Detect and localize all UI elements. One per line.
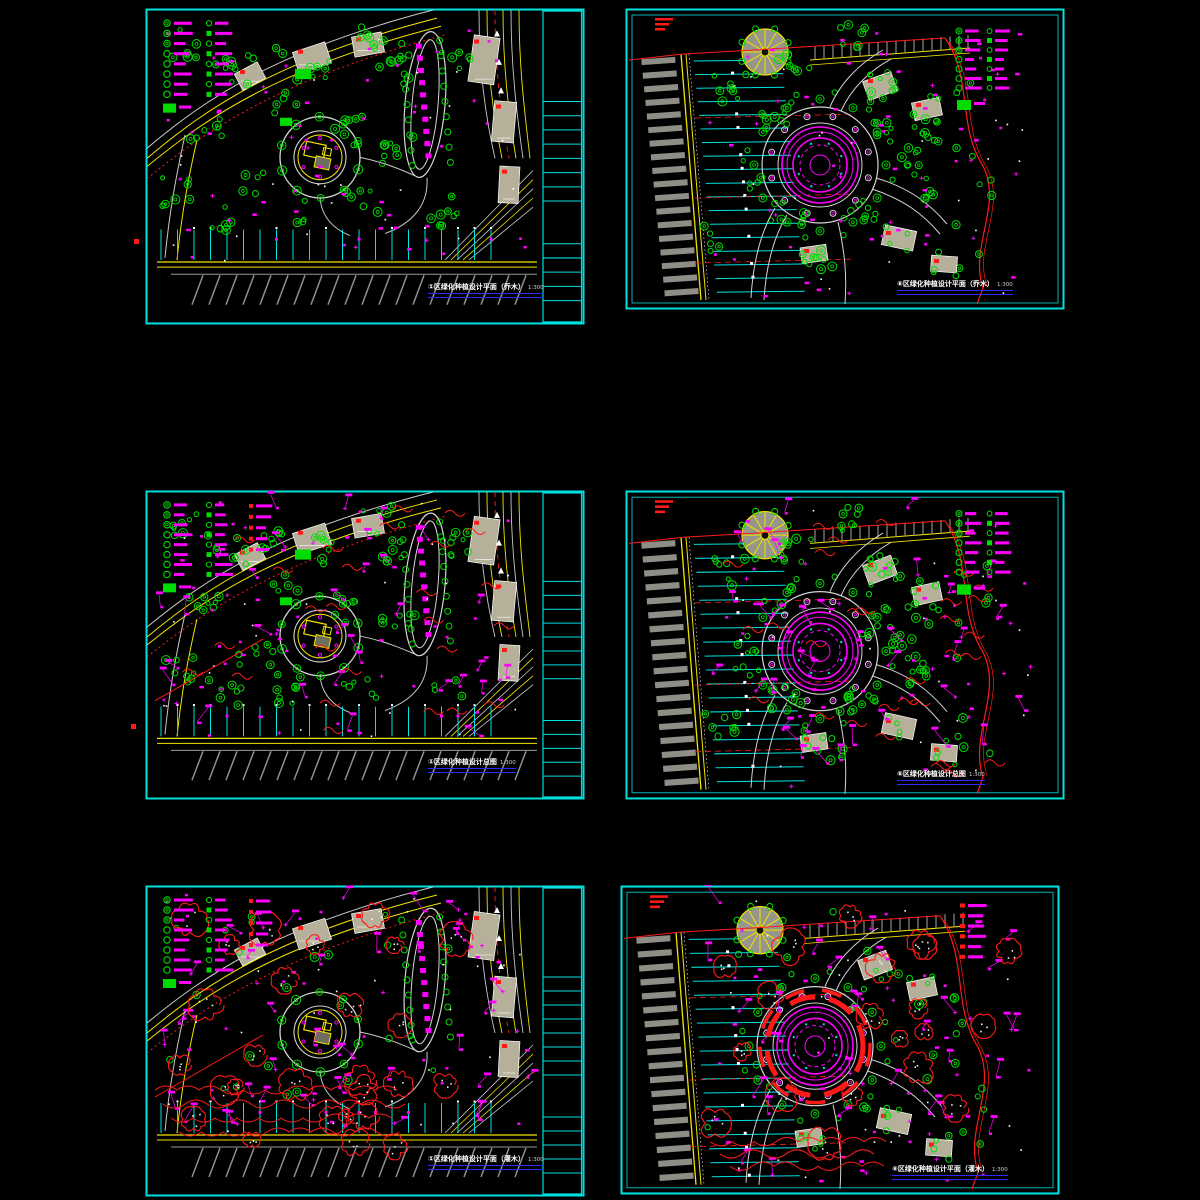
drawing-title: ①区绿化种植设计平面（乔木）1:300 — [428, 283, 544, 298]
sheet-frame — [147, 491, 584, 798]
site-plan-drawing — [145, 885, 585, 1197]
drawing-scale: 1:300 — [528, 284, 544, 292]
road-network — [751, 50, 947, 304]
central-circular-plaza — [745, 574, 895, 728]
drawing-title: ⑥区绿化种植设计平面（乔木）1:300 — [897, 280, 1013, 295]
site-plan-drawing — [145, 490, 585, 800]
site-plan-drawing — [625, 490, 1065, 800]
plan-panel-zone1-shrubs: ①区绿化种植设计平面（灌木）1:300 — [145, 885, 585, 1197]
title-block-column — [543, 11, 582, 322]
road-network — [746, 928, 942, 1189]
corner-note-marks — [655, 500, 673, 513]
drawing-title: ⑥区绿化种植设计平面（灌木）1:300 — [892, 1165, 1008, 1180]
corner-note-marks — [655, 18, 673, 31]
drawing-scale: 1:300 — [500, 759, 516, 767]
plant-legend — [163, 20, 233, 113]
drawing-title-text: ①区绿化种植设计平面（灌木） — [428, 1155, 525, 1163]
plan-panel-zone6-shrubs: ⑥区绿化种植设计平面（灌木）1:300 — [620, 885, 1060, 1195]
plan-panel-zone1-trees: ①区绿化种植设计平面（乔木）1:300 — [145, 8, 585, 325]
parking-strip — [641, 54, 855, 300]
drawing-title-text: ①区绿化种植设计总图 — [428, 758, 497, 766]
title-underline — [892, 1175, 1008, 1180]
title-underline — [428, 1165, 544, 1170]
drawing-title: ①区绿化种植设计总图1:300 — [428, 758, 516, 773]
parking-strip — [641, 537, 855, 790]
site-plan-drawing — [620, 885, 1060, 1195]
drawing-title: ⑥区绿化种植设计总图1:300 — [897, 770, 985, 785]
drawing-scale: 1:300 — [992, 1166, 1008, 1174]
sheet-frame — [147, 887, 584, 1196]
buildings — [234, 513, 520, 681]
title-underline — [428, 768, 516, 773]
drawing-title-text: ①区绿化种植设计平面（乔木） — [428, 283, 525, 291]
buildings — [234, 32, 520, 204]
title-underline — [897, 780, 985, 785]
title-underline — [897, 290, 1013, 295]
title-underline — [428, 293, 544, 298]
drawing-scale: 1:300 — [528, 1156, 544, 1164]
title-block-column — [543, 888, 582, 1194]
central-ring-plaza — [278, 989, 363, 1077]
drawing-scale: 1:300 — [997, 281, 1013, 289]
title-block-column — [543, 493, 582, 797]
cad-sheet-background: { "sheet": { "description_visible_panels… — [0, 0, 1200, 1200]
margin-revision-mark — [131, 724, 136, 729]
site-plan-drawing — [625, 8, 1065, 310]
parking-strip — [636, 932, 850, 1185]
plan-panel-zone6-overall: ⑥区绿化种植设计总图1:300 — [625, 490, 1065, 800]
plan-panel-zone6-trees: ⑥区绿化种植设计平面（乔木）1:300 — [625, 8, 1065, 310]
plan-panel-zone1-overall: ①区绿化种植设计总图1:300 — [145, 490, 585, 800]
site-plan-drawing — [145, 8, 585, 325]
drawing-title-text: ⑥区绿化种植设计平面（灌木） — [892, 1165, 989, 1173]
central-circular-plaza — [745, 90, 895, 240]
margin-revision-mark — [134, 239, 139, 244]
drawing-scale: 1:300 — [969, 771, 985, 779]
corner-note-marks — [650, 895, 668, 908]
oval-loop-road — [399, 907, 454, 1054]
parking-dimension-lines — [161, 704, 491, 736]
oval-loop-road — [399, 511, 454, 657]
circular-wheel-plaza — [739, 508, 791, 562]
drawing-title-text: ⑥区绿化种植设计总图 — [897, 770, 966, 778]
drawing-title-text: ⑥区绿化种植设计平面（乔木） — [897, 280, 994, 288]
central-circular-plaza — [740, 969, 890, 1123]
sheet-frame — [147, 10, 584, 324]
drawing-title: ①区绿化种植设计平面（灌木）1:300 — [428, 1155, 544, 1170]
